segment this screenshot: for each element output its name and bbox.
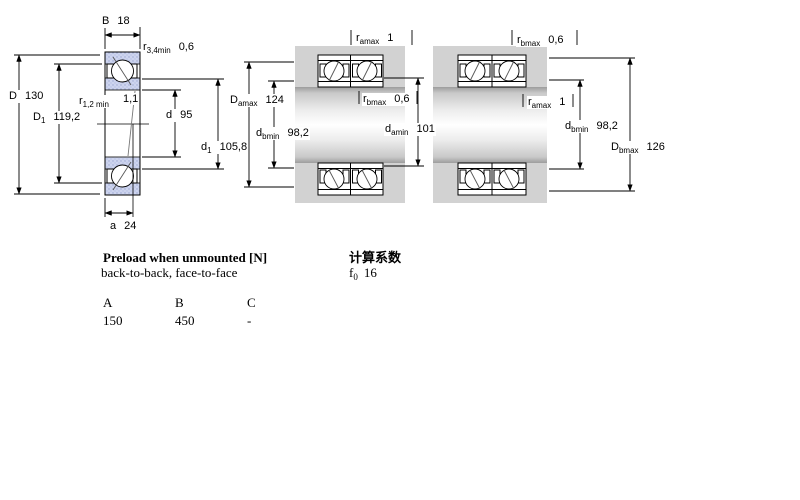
dim-label-rbmax-right: rbmax0,6	[516, 34, 565, 47]
dim-label-D1: D1119,2	[32, 111, 81, 124]
dim-label-d: d95	[165, 109, 193, 122]
dim-label-dbmin-middle: dbmin98,2	[255, 127, 310, 140]
dim-label-d1: d1105,8	[200, 141, 248, 154]
dim-label-dbmin-right: dbmin98,2	[564, 120, 619, 133]
preload-title: Preload when unmounted [N]	[103, 250, 267, 265]
preload-value-A: 150	[103, 313, 123, 328]
calculation-factors-title: 计算系数	[349, 250, 401, 265]
dim-label-r34min: r3,4min0,6	[142, 41, 195, 54]
dim-label-r12min: r1,2 min	[78, 95, 110, 108]
preload-col-header-C: C	[247, 295, 256, 310]
dim-label-rbmax-middle: rbmax0,6	[362, 93, 411, 106]
preload-value-B: 450	[175, 313, 195, 328]
preload-value-C: -	[247, 313, 251, 328]
right-figure-mounting	[433, 46, 547, 203]
preload-subtitle: back-to-back, face-to-face	[101, 265, 237, 280]
preload-col-header-A: A	[103, 295, 112, 310]
dim-label-ramax-middle: ramax1	[355, 32, 394, 45]
dim-label-Damax: Damax124	[229, 94, 285, 107]
calculation-factor-f0: f016	[349, 265, 377, 282]
dim-value-r12min: 1,1	[122, 93, 139, 105]
dim-label-Dbmax: Dbmax126	[610, 141, 666, 154]
dim-label-a: a24	[109, 220, 137, 233]
dim-label-ramax-right: ramax1	[527, 96, 566, 109]
dim-label-B: B18	[101, 15, 131, 28]
dim-label-D: D130	[8, 90, 44, 103]
bearing-dimension-drawing-page: B18 r3,4min0,6 D130 D1119,2 r1,2 min 1,1…	[0, 0, 800, 500]
preload-col-header-B: B	[175, 295, 184, 310]
dim-label-damin: damin101	[384, 123, 436, 136]
